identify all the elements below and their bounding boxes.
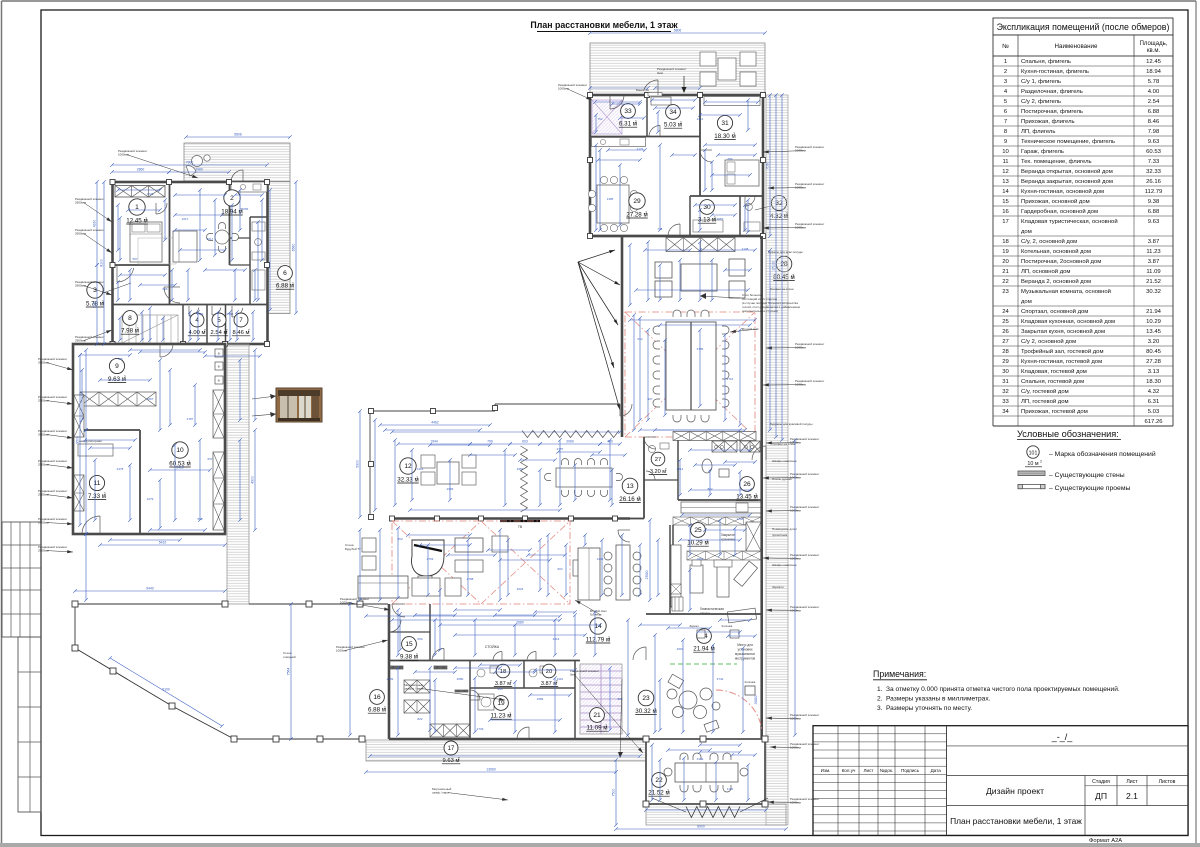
- svg-text:Стадия: Стадия: [1092, 779, 1110, 785]
- svg-text:2017: 2017: [207, 237, 214, 241]
- svg-text:2: 2: [458, 757, 460, 761]
- svg-text:1279: 1279: [147, 497, 154, 501]
- svg-text:Спортзал, основной дом: Спортзал, основной дом: [1021, 308, 1088, 315]
- svg-text:34: 34: [669, 109, 677, 116]
- svg-text:597: 597: [132, 257, 137, 261]
- svg-text:2: 2: [384, 706, 386, 710]
- svg-text:Изм.: Изм.: [821, 768, 831, 773]
- svg-text:19: 19: [497, 700, 505, 707]
- svg-text:11: 11: [94, 480, 101, 487]
- svg-text:2: 2: [680, 121, 682, 125]
- svg-text:2: 2: [188, 460, 190, 464]
- svg-text:3.87: 3.87: [1148, 259, 1159, 265]
- svg-text:0мм: 0мм: [570, 673, 576, 677]
- svg-text:2: 2: [145, 217, 147, 221]
- svg-text:4.00: 4.00: [1148, 89, 1160, 95]
- svg-text:21.94: 21.94: [1146, 309, 1161, 315]
- svg-text:2: 2: [755, 493, 757, 497]
- svg-text:2657: 2657: [717, 217, 724, 221]
- svg-text:2: 2: [204, 329, 206, 333]
- svg-text:музыкальных: музыкальных: [735, 652, 755, 656]
- svg-text:696: 696: [162, 287, 167, 291]
- svg-text:2969: 2969: [517, 467, 524, 471]
- svg-text:0мм: 0мм: [657, 71, 663, 75]
- svg-text:3.87: 3.87: [1148, 239, 1159, 245]
- svg-text:1586: 1586: [537, 697, 544, 701]
- svg-text:ЛП, гостевой дом: ЛП, гостевой дом: [1021, 398, 1069, 405]
- svg-text:18: 18: [1002, 239, 1009, 245]
- svg-text:дом: дом: [1021, 229, 1032, 235]
- svg-text:инструментов: инструментов: [735, 657, 756, 661]
- svg-text:112.79: 112.79: [1145, 189, 1163, 195]
- svg-text:60.53: 60.53: [1146, 149, 1161, 155]
- svg-text:Кладовая туристическая, основн: Кладовая туристическая, основной: [1021, 218, 1118, 225]
- svg-text:ТВ: ТВ: [518, 525, 523, 529]
- svg-text:15: 15: [1002, 199, 1009, 205]
- svg-text:Кладовая, гостевой дом: Кладовая, гостевой дом: [1021, 368, 1087, 375]
- svg-text:2500: 2500: [644, 570, 649, 580]
- svg-text:2: 2: [226, 329, 228, 333]
- svg-text:13.45: 13.45: [1146, 329, 1161, 335]
- svg-text:24: 24: [1002, 309, 1009, 315]
- svg-text:2: 2: [608, 636, 610, 640]
- svg-text:603: 603: [557, 567, 562, 571]
- svg-text:11.09: 11.09: [1146, 269, 1160, 275]
- svg-text:Гимнастическая: Гимнастическая: [700, 607, 724, 611]
- svg-text:7500: 7500: [612, 789, 616, 797]
- svg-text:С/у 1, флигель: С/у 1, флигель: [1021, 79, 1061, 85]
- svg-text:33: 33: [624, 108, 632, 115]
- svg-text:Колонка: Колонка: [722, 624, 733, 628]
- svg-text:11: 11: [1002, 159, 1008, 165]
- svg-text:Гараж, флигель: Гараж, флигель: [1021, 149, 1064, 155]
- svg-text:12: 12: [404, 463, 412, 470]
- svg-text:Будубой ТГ: Будубой ТГ: [345, 547, 361, 551]
- svg-text:Кухня-гостиная, гостевой дом: Кухня-гостиная, гостевой дом: [1021, 358, 1102, 365]
- svg-text:4160: 4160: [93, 220, 97, 228]
- svg-text:990: 990: [617, 697, 622, 701]
- svg-text:2787: 2787: [187, 417, 194, 421]
- svg-text:3000: 3000: [753, 695, 758, 705]
- svg-text:2: 2: [706, 539, 708, 543]
- svg-text:400: 400: [607, 440, 613, 444]
- svg-text:Дизайн проект: Дизайн проект: [986, 786, 1044, 796]
- svg-text:603: 603: [522, 440, 528, 444]
- svg-text:Место для: Место для: [737, 643, 753, 647]
- svg-text:Лист: Лист: [1126, 779, 1138, 785]
- svg-text:590: 590: [417, 637, 422, 641]
- svg-text:Прихожая, флигель: Прихожая, флигель: [1021, 119, 1075, 125]
- svg-text:2.1: 2.1: [1126, 791, 1138, 801]
- svg-text:22: 22: [655, 777, 663, 784]
- svg-text:12.45: 12.45: [1146, 59, 1161, 65]
- svg-text:17100: 17100: [772, 261, 776, 271]
- svg-text:3066: 3066: [242, 207, 249, 211]
- svg-text:С/у, 2, основной дом: С/у, 2, основной дом: [1021, 238, 1077, 245]
- svg-text:2680: 2680: [516, 621, 524, 625]
- svg-text:2116: 2116: [557, 677, 564, 681]
- svg-text:2: 2: [665, 467, 667, 471]
- svg-text:30.32: 30.32: [1146, 289, 1161, 295]
- svg-text:2: 2: [104, 492, 106, 496]
- svg-text:2: 2: [102, 300, 104, 304]
- svg-text:2594: 2594: [227, 312, 234, 316]
- svg-text:9500: 9500: [76, 436, 80, 444]
- svg-text:3016: 3016: [553, 637, 560, 641]
- svg-text:9: 9: [115, 363, 119, 370]
- svg-text:Постирочная, флигель: Постирочная, флигель: [1021, 109, 1083, 115]
- svg-text:19: 19: [1002, 249, 1009, 255]
- svg-text:1.: 1.: [877, 686, 883, 693]
- svg-text:2: 2: [124, 375, 126, 379]
- svg-text:Кухня-гостиная, основной дом: Кухня-гостиная, основной дом: [1021, 188, 1104, 195]
- svg-text:2: 2: [137, 327, 139, 331]
- svg-text:945: 945: [497, 687, 502, 691]
- svg-text:С/у, гостевой дом: С/у, гостевой дом: [1021, 388, 1069, 395]
- svg-text:80.45: 80.45: [1146, 349, 1161, 355]
- svg-text:Колонка: Колонка: [745, 680, 756, 684]
- svg-text:3: 3: [93, 287, 97, 294]
- svg-text:4462: 4462: [431, 421, 439, 425]
- svg-text:13: 13: [626, 483, 634, 490]
- svg-text:Формат А2А: Формат А2А: [1089, 838, 1122, 844]
- svg-text:2.: 2.: [877, 696, 883, 703]
- svg-text:27: 27: [655, 457, 661, 463]
- svg-text:2: 2: [654, 707, 656, 711]
- svg-text:2: 2: [1040, 460, 1042, 464]
- svg-text:21.52: 21.52: [1146, 279, 1161, 285]
- svg-text:20: 20: [1002, 259, 1009, 265]
- svg-text:Будуары для красивой посуды: Будуары для красивой посуды: [770, 422, 812, 426]
- svg-text:Прихожая, основной дом: Прихожая, основной дом: [1021, 198, 1090, 205]
- svg-text:Закрытая кухня, основной дом: Закрытая кухня, основной дом: [1021, 328, 1105, 335]
- svg-text:25: 25: [694, 527, 702, 534]
- svg-text:23: 23: [1002, 289, 1009, 295]
- svg-text:34: 34: [1002, 409, 1009, 415]
- svg-text:Техническое помещение, флигель: Техническое помещение, флигель: [1021, 139, 1115, 145]
- svg-text:Веранда закрытая, основной дом: Веранда закрытая, основной дом: [1021, 178, 1113, 185]
- svg-text:– Существующие стены: – Существующие стены: [1049, 472, 1125, 479]
- svg-text:Размеры уточнять по месту.: Размеры уточнять по месту.: [886, 705, 972, 712]
- svg-text:3.: 3.: [877, 705, 883, 712]
- svg-text:✳: ✳: [217, 364, 221, 369]
- svg-text:7564: 7564: [287, 668, 291, 676]
- svg-text:112.79 м: 112.79 м: [586, 636, 610, 643]
- svg-text:✳: ✳: [217, 378, 221, 383]
- svg-text:26: 26: [1002, 329, 1009, 335]
- svg-text:31: 31: [1002, 379, 1009, 385]
- svg-text:14: 14: [1002, 189, 1009, 195]
- svg-text:7.98: 7.98: [1148, 129, 1160, 135]
- svg-text:2: 2: [248, 329, 250, 333]
- svg-text:5410: 5410: [176, 466, 184, 470]
- svg-text:Котельная, основной дом: Котельная, основной дом: [1021, 248, 1091, 255]
- svg-text:2694: 2694: [677, 647, 684, 651]
- svg-text:Площадь,: Площадь,: [1140, 41, 1168, 47]
- svg-text:Трофеи на стене: Трофеи на стене: [772, 442, 796, 446]
- svg-text:22: 22: [1002, 279, 1009, 285]
- svg-text:2: 2: [605, 724, 607, 728]
- svg-text:5.03: 5.03: [1148, 409, 1160, 415]
- svg-text:Подпись: Подпись: [901, 768, 920, 773]
- svg-text:1944: 1944: [430, 440, 438, 444]
- svg-text:18.94: 18.94: [1146, 69, 1161, 75]
- svg-text:2: 2: [714, 216, 716, 220]
- svg-text:29: 29: [1002, 359, 1009, 365]
- svg-text:3742: 3742: [717, 677, 724, 681]
- svg-text:101: 101: [1029, 450, 1038, 456]
- svg-text:15: 15: [405, 641, 413, 648]
- svg-text:Веранда 2, основной дом: Веранда 2, основной дом: [1021, 278, 1091, 285]
- svg-text:6560: 6560: [292, 244, 296, 252]
- svg-text:13960: 13960: [486, 768, 496, 772]
- svg-text:2980: 2980: [195, 168, 203, 172]
- svg-text:3193: 3193: [697, 757, 704, 761]
- svg-text:617.26: 617.26: [1144, 419, 1163, 425]
- svg-text:13: 13: [1002, 179, 1009, 185]
- svg-text:3940: 3940: [93, 301, 97, 309]
- svg-text:2: 2: [645, 211, 647, 215]
- svg-text:Помещение для с: Помещение для с: [772, 527, 797, 531]
- svg-text:2: 2: [667, 789, 669, 793]
- svg-text:21: 21: [593, 712, 601, 719]
- svg-text:6100: 6100: [162, 688, 170, 692]
- svg-text:проектным.: проектным.: [772, 533, 788, 537]
- svg-text:5300: 5300: [356, 460, 360, 468]
- svg-text:8.46: 8.46: [1148, 119, 1160, 125]
- svg-text:1314: 1314: [417, 467, 424, 471]
- svg-text:2782: 2782: [387, 677, 394, 681]
- svg-text:1663: 1663: [697, 557, 704, 561]
- svg-text:_-_/_: _-_/_: [1051, 732, 1074, 742]
- svg-text:27: 27: [1002, 339, 1009, 345]
- svg-text:799: 799: [487, 440, 493, 444]
- svg-text:752: 752: [597, 117, 602, 121]
- svg-text:Примечания:: Примечания:: [873, 669, 926, 679]
- svg-text:Прихожая, гостевой дом: Прихожая, гостевой дом: [1021, 408, 1088, 415]
- svg-text:1: 1: [1004, 59, 1007, 65]
- svg-text:2: 2: [510, 679, 512, 683]
- svg-text:2.54: 2.54: [1148, 99, 1160, 105]
- svg-text:2716: 2716: [727, 377, 734, 381]
- svg-text:10: 10: [176, 447, 184, 454]
- svg-text:Условные обозначения:: Условные обозначения:: [1017, 429, 1119, 439]
- svg-text:3.13: 3.13: [1148, 369, 1160, 375]
- svg-text:Шкафы навесные: Шкафы навесные: [772, 563, 797, 567]
- svg-text:2176: 2176: [637, 147, 644, 151]
- svg-text:7900: 7900: [186, 161, 194, 165]
- svg-text:1385: 1385: [607, 197, 614, 201]
- svg-text:637: 637: [207, 457, 212, 461]
- svg-text:29: 29: [633, 198, 641, 205]
- svg-text:№док.: №док.: [880, 768, 893, 773]
- svg-text:ЛП, флигель: ЛП, флигель: [1021, 129, 1055, 135]
- svg-text:С/у 2, флигель: С/у 2, флигель: [1021, 99, 1061, 105]
- svg-text:9: 9: [1004, 139, 1007, 145]
- svg-text:26.16: 26.16: [1146, 179, 1161, 185]
- svg-text:2060: 2060: [566, 440, 574, 444]
- svg-text:10: 10: [1002, 149, 1009, 155]
- svg-text:Зеркал: Зеркал: [689, 624, 699, 628]
- svg-text:2: 2: [638, 495, 640, 499]
- svg-text:Кладовая кухонная, основной до: Кладовая кухонная, основной дом: [1021, 318, 1115, 325]
- svg-text:2680: 2680: [457, 677, 464, 681]
- svg-text:1305: 1305: [597, 557, 604, 561]
- svg-text:9.38: 9.38: [1148, 199, 1160, 205]
- svg-text:9.63: 9.63: [1148, 139, 1160, 145]
- svg-text:7: 7: [1004, 119, 1007, 125]
- svg-text:17: 17: [448, 746, 455, 752]
- svg-text:Плита, духовк.: Плита, духовк.: [772, 477, 793, 481]
- svg-text:2: 2: [733, 132, 735, 136]
- svg-text:33: 33: [1002, 399, 1009, 405]
- svg-text:Листов: Листов: [1159, 779, 1176, 785]
- svg-text:2: 2: [416, 476, 418, 480]
- svg-text:установки: установки: [738, 648, 753, 652]
- svg-text:Аккумуляторная: Аккумуляторная: [79, 439, 102, 443]
- svg-text:822: 822: [417, 717, 422, 721]
- svg-text:6.88: 6.88: [1148, 209, 1160, 215]
- svg-text:10 м: 10 м: [1027, 461, 1038, 467]
- svg-text:6: 6: [283, 270, 287, 277]
- svg-text:8100: 8100: [100, 259, 104, 267]
- svg-text:5806: 5806: [674, 29, 682, 33]
- svg-text:2024: 2024: [517, 587, 524, 591]
- svg-text:Банкетка: Банкетка: [636, 88, 649, 92]
- svg-text:дом: дом: [1021, 299, 1032, 305]
- svg-text:С/у 2, основной дом: С/у 2, основной дом: [1021, 338, 1076, 345]
- svg-text:2739: 2739: [477, 727, 484, 731]
- svg-text:Музыкальная комната, основной: Музыкальная комната, основной: [1021, 288, 1111, 295]
- svg-text:1726: 1726: [147, 192, 154, 196]
- svg-text:ДП: ДП: [1095, 791, 1107, 801]
- svg-text:3786: 3786: [697, 347, 704, 351]
- svg-text:откидной: откидной: [283, 655, 296, 659]
- svg-text:Размеры указаны в миллиметрах.: Размеры указаны в миллиметрах.: [886, 696, 991, 703]
- svg-text:5806: 5806: [234, 133, 242, 137]
- svg-text:10.29: 10.29: [1146, 319, 1161, 325]
- svg-text:32.33: 32.33: [1146, 169, 1161, 175]
- svg-text:2787: 2787: [557, 447, 564, 451]
- svg-text:23: 23: [642, 695, 650, 702]
- svg-text:шкаф / кара: шкаф / кара: [432, 791, 449, 795]
- svg-text:2138: 2138: [742, 247, 749, 251]
- svg-text:3.20: 3.20: [1148, 339, 1160, 345]
- svg-text:Трофейный зал, гостевой дом: Трофейный зал, гостевой дом: [1021, 348, 1104, 355]
- svg-text:31: 31: [721, 120, 729, 127]
- svg-text:5410: 5410: [159, 541, 167, 545]
- svg-text:хранение: хранение: [721, 538, 735, 542]
- svg-text:8: 8: [128, 315, 132, 322]
- svg-text:642: 642: [637, 337, 642, 341]
- svg-text:Наименование: Наименование: [1055, 43, 1098, 50]
- svg-text:СТОЙКА: СТОЙКА: [485, 645, 500, 649]
- svg-text:Спальня, флигель: Спальня, флигель: [1021, 59, 1071, 65]
- svg-text:32: 32: [1002, 389, 1009, 395]
- svg-text:дополнительных стульев): дополнительных стульев): [742, 309, 778, 313]
- svg-text:Спальня, гостевой дом: Спальня, гостевой дом: [1021, 378, 1084, 385]
- svg-text:Дата: Дата: [931, 768, 942, 773]
- svg-text:18.30: 18.30: [1146, 379, 1161, 385]
- svg-text:ЛП, основной дом: ЛП, основной дом: [1021, 268, 1070, 275]
- svg-text:27.28: 27.28: [1146, 359, 1161, 365]
- svg-text:785: 785: [117, 357, 122, 361]
- svg-text:4.32: 4.32: [1148, 389, 1159, 395]
- svg-text:26: 26: [743, 481, 751, 488]
- svg-text:2112: 2112: [697, 117, 704, 121]
- svg-text:Закрытое: Закрытое: [721, 533, 735, 537]
- svg-text:Кол.уч: Кол.уч: [842, 768, 856, 773]
- svg-text:2: 2: [1004, 69, 1007, 75]
- svg-text:кв.м.: кв.м.: [1147, 48, 1161, 54]
- svg-text:Тех. помещение, флигель: Тех. помещение, флигель: [1021, 159, 1092, 165]
- svg-text:12: 12: [1002, 169, 1009, 175]
- svg-text:686: 686: [727, 157, 732, 161]
- svg-text:За отметку 0.000 принята отмет: За отметку 0.000 принята отметка чистого…: [886, 685, 1120, 693]
- svg-text:6.31: 6.31: [1148, 399, 1159, 405]
- svg-text:Веранда открытая, основной дом: Веранда открытая, основной дом: [1021, 168, 1113, 175]
- svg-text:шкафы / кара: шкафы / кара: [404, 687, 423, 691]
- svg-text:7050: 7050: [766, 162, 770, 170]
- svg-text:2: 2: [292, 282, 294, 286]
- svg-text:Кухня-гостиная, флигель: Кухня-гостиная, флигель: [1021, 69, 1089, 75]
- svg-text:2: 2: [635, 120, 637, 124]
- svg-text:30: 30: [1002, 369, 1009, 375]
- svg-text:2: 2: [792, 273, 794, 277]
- svg-text:1897: 1897: [147, 397, 154, 401]
- svg-text:План расстановки мебели, 1 эта: План расстановки мебели, 1 этаж: [950, 816, 1082, 826]
- svg-text:9.63: 9.63: [1148, 219, 1160, 225]
- svg-text:План расстановки мебели, 1 эта: План расстановки мебели, 1 этаж: [530, 20, 678, 30]
- svg-text:25: 25: [1002, 319, 1009, 325]
- svg-text:– Существующие проемы: – Существующие проемы: [1049, 485, 1130, 492]
- svg-text:✳: ✳: [217, 351, 221, 356]
- svg-text:28: 28: [1002, 349, 1009, 355]
- svg-text:5.78: 5.78: [1148, 79, 1160, 85]
- svg-text:2: 2: [509, 712, 511, 716]
- svg-text:Лист: Лист: [864, 768, 875, 773]
- svg-text:Экспликация помещений (после о: Экспликация помещений (после обмеров): [997, 22, 1170, 32]
- svg-text:11.23: 11.23: [1146, 249, 1161, 255]
- svg-text:2900мм: 2900мм: [75, 232, 86, 236]
- svg-text:– Марка обозначения помещений: – Марка обозначения помещений: [1049, 450, 1156, 458]
- svg-text:6.88: 6.88: [1148, 109, 1160, 115]
- svg-text:1140: 1140: [727, 787, 734, 791]
- svg-text:Шкафы навесные: Шкафы навесные: [772, 459, 797, 463]
- svg-text:2: 2: [416, 653, 418, 657]
- svg-text:2860: 2860: [137, 168, 145, 172]
- svg-text:4300: 4300: [251, 476, 255, 484]
- svg-text:16: 16: [1002, 209, 1009, 215]
- svg-text:Разделочная, флигель: Разделочная, флигель: [1021, 89, 1083, 95]
- svg-text:Постирочная, 2основной дом: Постирочная, 2основной дом: [1021, 258, 1101, 265]
- svg-text:2738: 2738: [737, 517, 744, 521]
- svg-text:2478: 2478: [117, 467, 124, 471]
- svg-text:Буфеты для крас.посуды: Буфеты для крас.посуды: [768, 250, 803, 254]
- svg-text:2900мм: 2900мм: [75, 201, 86, 205]
- svg-text:17: 17: [1002, 219, 1009, 225]
- svg-text:16: 16: [373, 694, 381, 701]
- svg-text:7.33: 7.33: [1148, 159, 1160, 165]
- svg-text:№: №: [1002, 43, 1009, 50]
- svg-text:8900: 8900: [697, 825, 705, 829]
- svg-text:9440: 9440: [146, 587, 154, 591]
- svg-text:Зеркало: Зеркало: [772, 585, 784, 589]
- svg-text:1017: 1017: [182, 217, 189, 221]
- svg-text:Гардеробная, основной дом: Гардеробная, основной дом: [1021, 208, 1098, 215]
- svg-text:21: 21: [1002, 269, 1009, 275]
